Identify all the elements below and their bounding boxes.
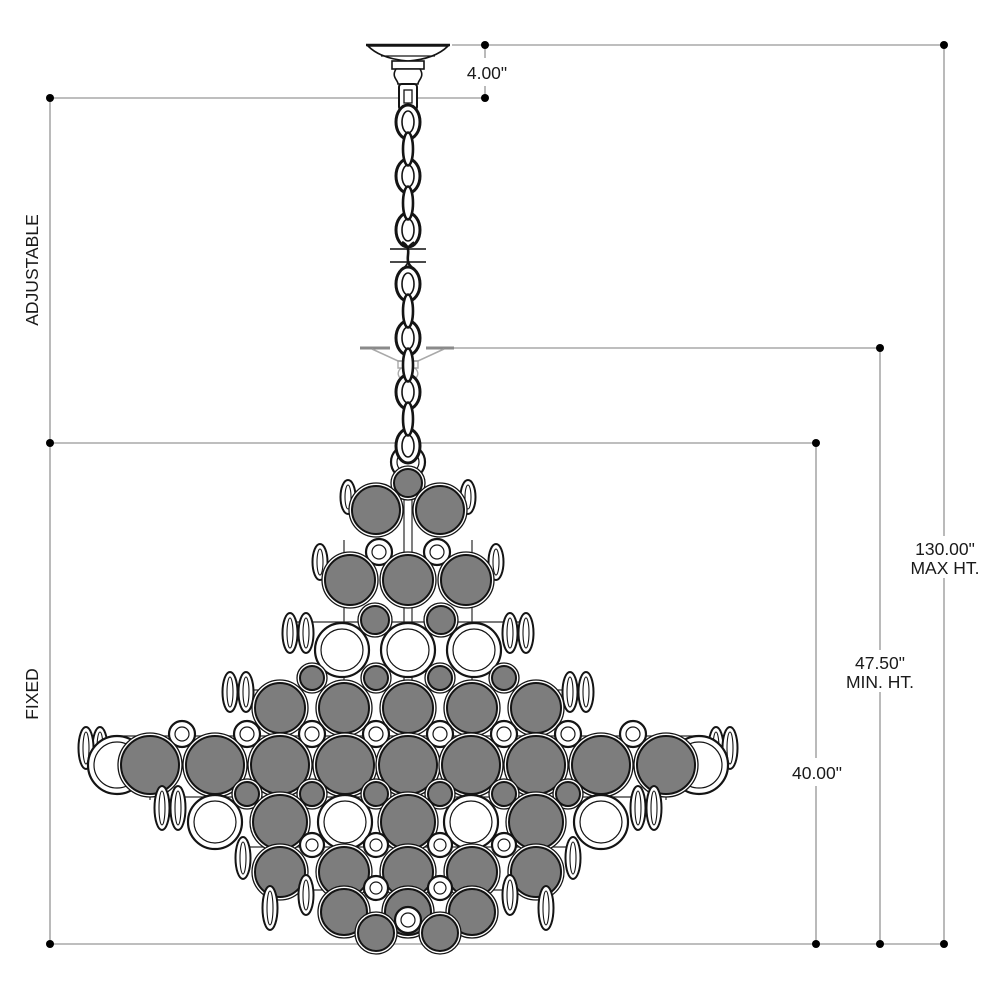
chandelier-fixture [79,445,738,954]
canopy-drop-label: 4.00" [467,63,507,83]
technical-drawing-page: 4.00" 130.00" MAX HT. 47.50" MIN. HT. 40… [0,0,1000,1000]
fixture-height-label: 40.00" [792,763,842,783]
max-height-value: 130.00" [915,539,975,559]
chandelier-dimension-drawing: 4.00" 130.00" MAX HT. 47.50" MIN. HT. 40… [0,0,1000,1000]
fixed-segment-label: FIXED [22,668,42,720]
ceiling-canopy [366,45,450,110]
min-height-value: 47.50" [855,653,905,673]
adjustable-segment-label: ADJUSTABLE [22,214,42,326]
hanging-chain [390,105,426,463]
min-height-caption: MIN. HT. [846,672,914,692]
max-height-caption: MAX HT. [910,558,979,578]
